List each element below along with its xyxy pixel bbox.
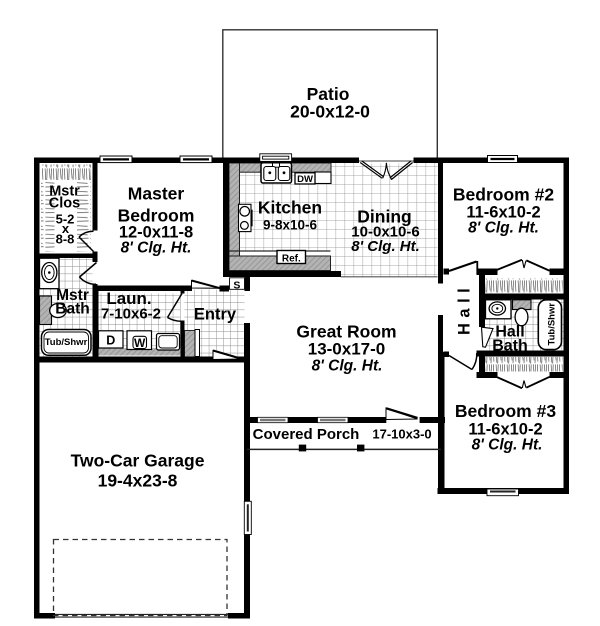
- svg-text:17-10x3-0: 17-10x3-0: [372, 427, 431, 442]
- svg-text:Great Room: Great Room: [296, 322, 396, 342]
- svg-text:Tub/Shwr: Tub/Shwr: [547, 303, 558, 346]
- svg-text:Bedroom: Bedroom: [118, 206, 195, 226]
- svg-text:7-10x6-2: 7-10x6-2: [101, 306, 161, 323]
- svg-text:Entry: Entry: [194, 306, 237, 324]
- svg-text:Bedroom #3: Bedroom #3: [455, 401, 556, 421]
- svg-text:8' Clg. Ht.: 8' Clg. Ht.: [472, 437, 543, 454]
- svg-text:Hall: Hall: [456, 283, 474, 335]
- svg-text:Bath: Bath: [55, 301, 89, 318]
- svg-text:8-8: 8-8: [56, 232, 75, 247]
- svg-text:19-4x23-8: 19-4x23-8: [98, 471, 178, 491]
- svg-text:9-8x10-6: 9-8x10-6: [263, 218, 318, 233]
- svg-text:D: D: [106, 334, 115, 348]
- svg-text:Kitchen: Kitchen: [258, 198, 322, 218]
- svg-text:Two-Car Garage: Two-Car Garage: [71, 451, 205, 471]
- svg-text:S: S: [233, 279, 240, 291]
- svg-text:13-0x17-0: 13-0x17-0: [308, 340, 386, 359]
- svg-text:Bedroom #2: Bedroom #2: [453, 185, 554, 205]
- svg-text:Master: Master: [128, 184, 185, 204]
- svg-text:20-0x12-0: 20-0x12-0: [290, 102, 370, 122]
- svg-text:8' Clg. Ht.: 8' Clg. Ht.: [468, 220, 539, 237]
- svg-text:Tub/Shwr: Tub/Shwr: [45, 337, 88, 348]
- svg-text:Ref.: Ref.: [282, 253, 301, 264]
- svg-text:DW: DW: [297, 174, 313, 185]
- svg-text:Covered Porch: Covered Porch: [253, 426, 360, 443]
- svg-text:8' Clg. Ht.: 8' Clg. Ht.: [121, 240, 192, 257]
- svg-text:8' Clg. Ht.: 8' Clg. Ht.: [351, 238, 420, 255]
- svg-text:W: W: [134, 336, 146, 350]
- svg-text:Bath: Bath: [492, 337, 528, 354]
- svg-text:Clos: Clos: [49, 196, 80, 212]
- svg-text:8' Clg. Ht.: 8' Clg. Ht.: [312, 358, 383, 375]
